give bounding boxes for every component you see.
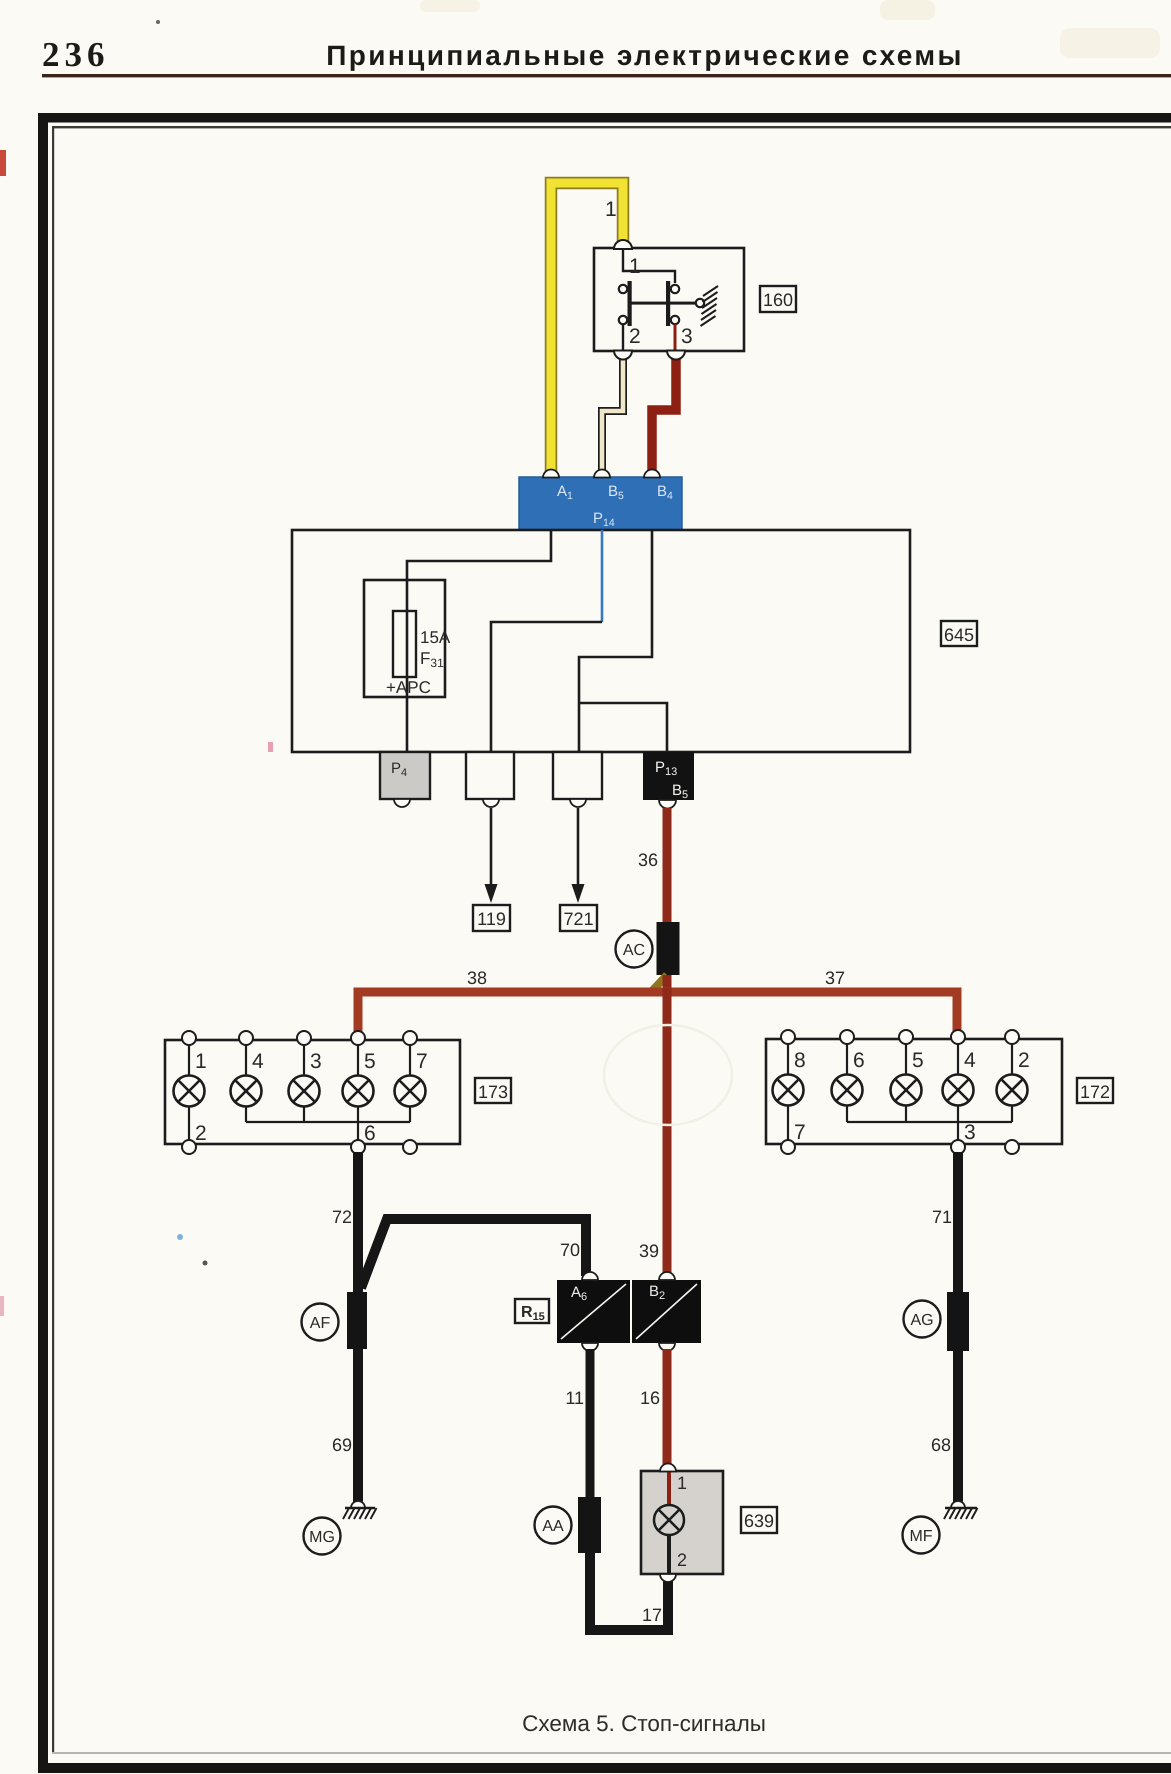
svg-text:70: 70 [560,1240,580,1260]
svg-text:645: 645 [944,625,974,645]
svg-text:7: 7 [416,1050,428,1073]
svg-text:4: 4 [964,1049,976,1072]
svg-text:1: 1 [605,198,617,221]
svg-text:AG: AG [910,1312,933,1329]
svg-text:173: 173 [478,1082,508,1102]
svg-text:119: 119 [477,909,506,929]
svg-text:37: 37 [825,968,845,988]
svg-text:7: 7 [794,1121,806,1144]
svg-text:6: 6 [853,1049,865,1072]
svg-text:38: 38 [467,968,487,988]
svg-text:172: 172 [1080,1082,1110,1102]
svg-text:5: 5 [364,1050,376,1073]
svg-text:16: 16 [640,1388,660,1408]
svg-text:1: 1 [677,1473,687,1493]
svg-text:17: 17 [642,1605,662,1625]
svg-text:AA: AA [542,1518,564,1535]
svg-text:71: 71 [932,1207,952,1227]
svg-text:236: 236 [42,35,110,74]
svg-text:39: 39 [639,1241,659,1261]
svg-text:1: 1 [629,255,641,278]
svg-text:3: 3 [310,1050,322,1073]
svg-text:68: 68 [931,1435,951,1455]
svg-text:15A: 15A [420,628,451,647]
svg-text:AC: AC [623,942,645,959]
svg-text:72: 72 [332,1207,352,1227]
svg-text:MF: MF [909,1528,932,1545]
svg-text:1: 1 [195,1050,207,1073]
svg-text:11: 11 [565,1388,584,1408]
svg-text:+APC: +APC [386,678,431,697]
svg-text:639: 639 [744,1511,774,1531]
svg-text:721: 721 [563,909,593,929]
svg-text:6: 6 [364,1122,376,1145]
svg-text:2: 2 [629,325,641,348]
svg-text:5: 5 [912,1049,924,1072]
svg-text:Принципиальные электрические: Принципиальные электрические схемы [326,40,964,71]
svg-text:2: 2 [677,1550,687,1570]
svg-text:8: 8 [794,1049,806,1072]
svg-text:36: 36 [638,850,658,870]
svg-text:Схема 5. Стоп-сигналы: Схема 5. Стоп-сигналы [522,1711,766,1736]
svg-text:MG: MG [309,1529,335,1546]
svg-text:69: 69 [332,1435,352,1455]
svg-text:3: 3 [964,1121,976,1144]
svg-text:AF: AF [310,1315,331,1332]
svg-text:4: 4 [252,1050,264,1073]
svg-text:3: 3 [681,325,693,348]
svg-text:160: 160 [763,290,793,310]
svg-text:2: 2 [1018,1049,1030,1072]
svg-text:2: 2 [195,1122,207,1145]
